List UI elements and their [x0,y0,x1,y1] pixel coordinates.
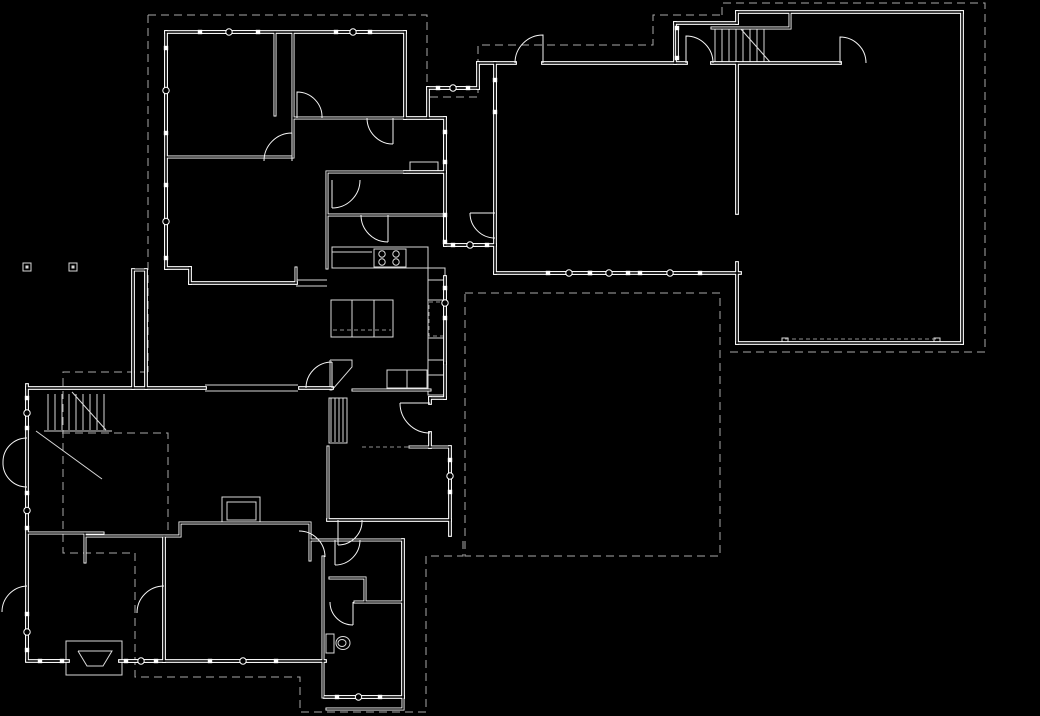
floorplan-page [0,0,1040,716]
windows-layer [24,26,702,700]
appliance-dashed-layer [333,302,937,447]
roof-overhang-dashed-layer [62,3,985,712]
floor-plan-canvas [0,0,1040,716]
